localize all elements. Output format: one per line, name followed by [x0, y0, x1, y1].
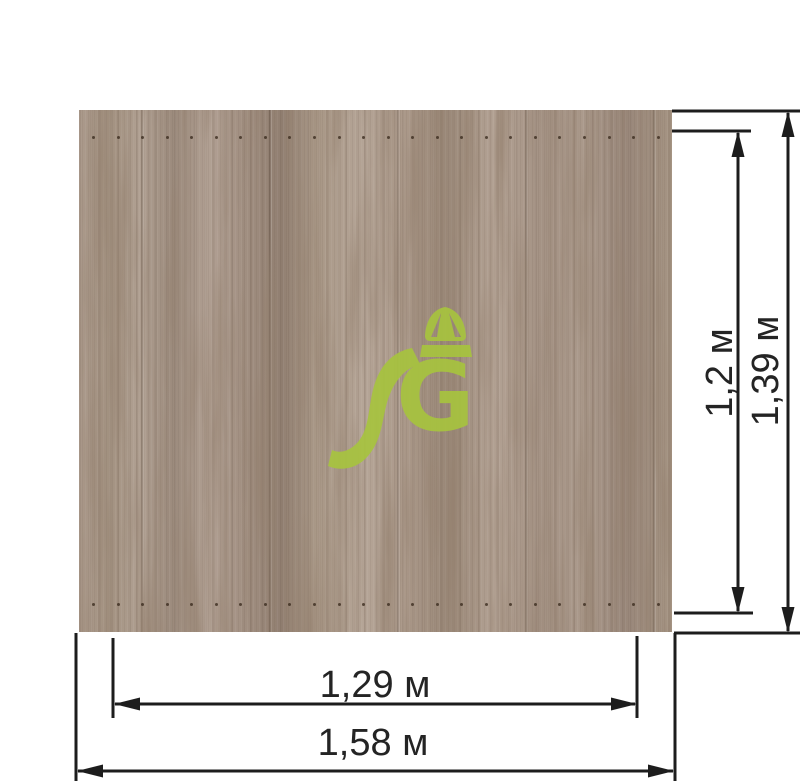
dimension-label-height-inner: 1,2 м — [701, 328, 739, 418]
dimension-label-height-outer: 1,39 м — [747, 316, 785, 427]
arrowhead-up — [782, 111, 795, 137]
arrowhead-left — [77, 765, 103, 778]
dimension-diagram: G 1,2 м 1,39 м 1,29 м 1,5 — [0, 0, 800, 781]
arrowhead-right — [648, 765, 674, 778]
arrowhead-up — [732, 131, 745, 157]
dimension-label-width-inner: 1,29 м — [320, 666, 431, 704]
arrowhead-right — [611, 698, 637, 711]
arrowhead-left — [114, 698, 140, 711]
dimension-label-width-outer: 1,58 м — [318, 724, 429, 762]
arrowhead-down — [732, 587, 745, 613]
arrowhead-down — [782, 607, 795, 633]
